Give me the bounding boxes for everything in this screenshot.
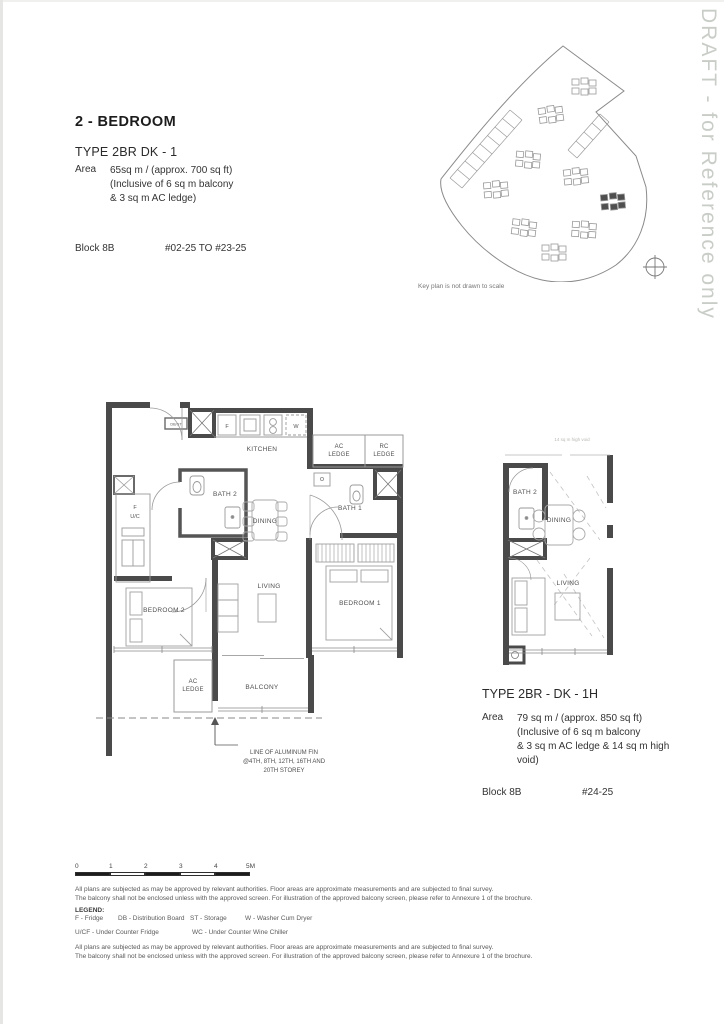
scale-bar-segments: [75, 872, 250, 876]
dbst-closet: DB/ST: [165, 418, 187, 429]
unit2-unit-range: #24-25: [582, 787, 613, 798]
scale-tick-4: 4: [214, 863, 218, 870]
fuc-uc-label: U/C: [130, 514, 140, 520]
unit2-type-title: TYPE 2BR - DK - 1H: [482, 687, 598, 701]
sink-icon: [240, 415, 260, 435]
draft-watermark: DRAFT - for Reference only: [696, 8, 720, 320]
page-title: 2 - BEDROOM: [75, 114, 176, 130]
terrace-row: [450, 110, 522, 188]
fin-annotation-2: @4TH, 8TH, 12TH, 16TH AND: [243, 759, 326, 765]
bedroom1-label: BEDROOM 1: [339, 600, 381, 607]
unit1-area-line2: (Inclusive of 6 sq m balcony: [110, 178, 233, 192]
fin-annotation-3: 20TH STOREY: [264, 768, 305, 774]
dbst-label: DB/ST: [170, 423, 182, 427]
unit1-area-line3: & 3 sq m AC ledge): [110, 192, 233, 206]
living-label: LIVING: [257, 583, 280, 590]
keyplan-caption: Key plan is not drawn to scale: [418, 283, 504, 290]
ledge-outlines: [174, 435, 403, 712]
unit1-block-label: Block 8B: [75, 243, 114, 254]
highlighted-block-8b: [600, 192, 625, 211]
dining-label: DINING: [253, 518, 278, 525]
legend-st: ST - Storage: [190, 915, 227, 922]
windows: [114, 646, 397, 713]
legend-row1: F - Fridge DB - Distribution Board ST - …: [75, 915, 650, 923]
tv-console-icon: [258, 594, 276, 622]
scale-tick-0: 0: [75, 863, 79, 870]
ac-ledge-bottom-label: AC: [189, 679, 198, 685]
legend-fridge: F - Fridge: [75, 915, 103, 922]
scale-tick-1: 1: [109, 863, 113, 870]
unit2-area-line3: & 3 sq m AC ledge & 14 sq m high: [517, 740, 669, 754]
basin-icon: [314, 473, 330, 486]
scale-tick-2: 2: [144, 863, 148, 870]
unit1-area-label: Area: [75, 164, 96, 175]
ac-ledge-bottom-label2: LEDGE: [182, 687, 203, 693]
legend-wc: WC - Under Counter Wine Chiller: [192, 929, 288, 936]
fuc-f-label: F: [133, 505, 137, 511]
door-arcs: [509, 468, 533, 580]
bath2-label: BATH 2: [213, 491, 237, 498]
floorplan-2br-dk-1: F W DB/ST F U/C: [92, 388, 432, 793]
void-note: 14 sq m high void: [554, 437, 590, 442]
balcony-label: BALCONY: [245, 684, 279, 691]
unit1-area-line1: 65sq m / (approx. 700 sq ft): [110, 164, 233, 178]
bath2-label: BATH 2: [513, 489, 537, 496]
bed2-icon: [126, 588, 192, 646]
bath-fixtures: [519, 508, 534, 529]
unit2-block-row: Block 8B #24-25: [482, 787, 521, 798]
unit1-type-title: TYPE 2BR DK - 1: [75, 145, 177, 159]
fridge-label: F: [225, 424, 229, 430]
legend-db: DB - Distribution Board: [118, 915, 184, 922]
unit2-area-line4: void): [517, 754, 669, 768]
scale-tick-5: 5M: [246, 863, 255, 870]
rc-ledge-label2: LEDGE: [373, 452, 394, 458]
unit2-area-label: Area: [482, 712, 503, 723]
disclaimer-repeat-line2: The balcony shall not be enclosed unless…: [75, 953, 532, 960]
bath1-label: BATH 1: [338, 505, 362, 512]
unit2-block-label: Block 8B: [482, 787, 521, 798]
unit1-block-row: Block 8B #02-25 TO #23-25: [75, 243, 114, 254]
fin-annotation-1: LINE OF ALUMINUM FIN: [250, 750, 318, 756]
scale-bar: 0 1 2 3 4 5M: [75, 863, 255, 879]
sofa-icon: [512, 578, 545, 635]
living-label: LIVING: [556, 580, 579, 587]
brochure-page: DRAFT - for Reference only 2 - BEDROOM T…: [0, 0, 724, 1024]
unit1-unit-range: #02-25 TO #23-25: [165, 243, 246, 254]
legend-w: W - Washer Cum Dryer: [245, 915, 312, 922]
north-compass-icon: [643, 255, 667, 279]
building-clusters: [483, 78, 596, 261]
disclaimer-line1: All plans are subjected as may be approv…: [75, 886, 493, 893]
floorplan-2br-dk-1h: 14 sq m high void: [492, 428, 647, 693]
furniture: [126, 544, 394, 646]
unit2-area-line2: (Inclusive of 6 sq m balcony: [517, 726, 669, 740]
ac-ledge-top-label2: LEDGE: [328, 452, 349, 458]
disclaimer-line2: The balcony shall not be enclosed unless…: [75, 895, 532, 902]
washer-label: W: [293, 424, 299, 430]
key-plan: [420, 30, 680, 282]
tv-console-icon: [555, 593, 580, 620]
disclaimer-repeat-line1: All plans are subjected as may be approv…: [75, 944, 493, 951]
ac-ledge-top-label: AC: [335, 444, 344, 450]
rc-ledge-label: RC: [379, 444, 389, 450]
sofa-icon: [218, 584, 238, 632]
dining-label: DINING: [547, 517, 572, 524]
terrace-row-ne: [568, 114, 609, 158]
unit2-area-line1: 79 sq m / (approx. 850 sq ft): [517, 712, 669, 726]
bedroom2-label: BEDROOM 2: [143, 607, 185, 614]
walls: [106, 402, 403, 756]
aluminum-fin-line: [96, 717, 322, 745]
legend-title: LEGEND:: [75, 907, 104, 914]
scale-tick-3: 3: [179, 863, 183, 870]
legend-ucf: U/CF - Under Counter Fridge: [75, 929, 159, 936]
legend-row2: U/CF - Under Counter Fridge WC - Under C…: [75, 929, 650, 937]
kitchen-label: KITCHEN: [247, 446, 278, 453]
wardrobe-icon: [316, 544, 394, 562]
